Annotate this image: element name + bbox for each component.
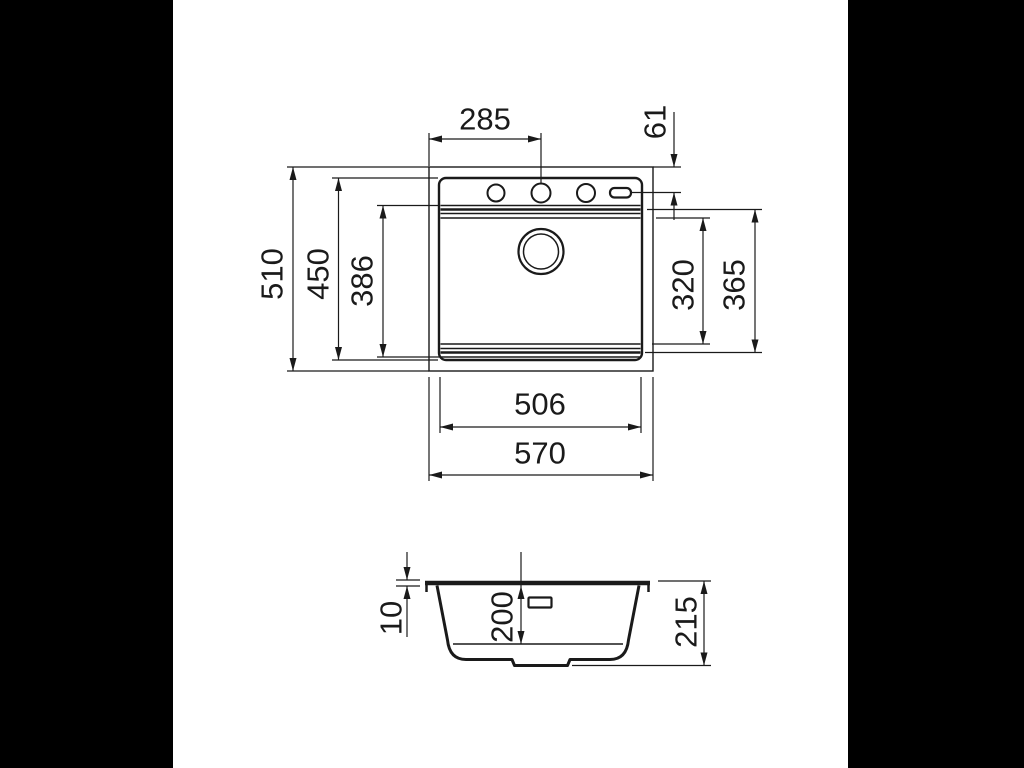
arrowhead: [671, 154, 678, 167]
letterbox-left: [0, 0, 173, 768]
arrowhead: [380, 344, 387, 357]
dim-label: 570: [514, 436, 566, 471]
arrowhead: [404, 586, 411, 599]
arrowhead: [429, 472, 442, 479]
dimension-10: 10: [374, 552, 421, 637]
dim-label: 386: [345, 255, 380, 307]
arrowhead: [335, 178, 342, 191]
arrowhead: [701, 653, 708, 666]
dim-label: 365: [717, 259, 752, 311]
arrowhead: [335, 347, 342, 360]
bowl-top-edge-lines: [441, 206, 641, 219]
dimension-506: 506: [440, 377, 641, 433]
arrowhead: [671, 193, 678, 206]
dim-label: 320: [666, 259, 701, 311]
dim-label: 10: [374, 601, 409, 635]
arrowhead: [429, 136, 442, 143]
arrowhead: [701, 581, 708, 594]
letterbox-right: [848, 0, 1024, 768]
dimension-510: 510: [255, 167, 430, 371]
arrowhead: [628, 424, 641, 431]
dimension-215: 215: [572, 581, 711, 666]
arrowhead: [700, 218, 707, 231]
arrowhead: [752, 340, 759, 353]
dimension-61: 61: [632, 105, 681, 220]
sink-section-view: [425, 581, 650, 666]
dim-label: 450: [301, 248, 336, 300]
sink-top-view: [429, 167, 653, 371]
dimension-285: 285: [429, 102, 541, 185]
dim-label: 285: [459, 102, 511, 137]
arrowhead: [528, 136, 541, 143]
arrowhead: [380, 206, 387, 219]
bowl-bottom-edge-lines: [441, 344, 641, 357]
dim-label: 506: [514, 387, 566, 422]
arrowhead: [290, 167, 297, 180]
drain-circle-outer: [519, 229, 564, 274]
arrowhead: [700, 331, 707, 344]
arrowhead: [440, 424, 453, 431]
dimension-200: 200: [485, 552, 525, 644]
drain-circle-inner: [524, 234, 559, 269]
arrowhead: [640, 472, 653, 479]
arrowhead: [752, 210, 759, 223]
overflow-hole: [529, 598, 552, 608]
dimension-320: 320: [652, 218, 710, 344]
faucet-hole-center: [532, 184, 551, 203]
arrowhead: [290, 358, 297, 371]
dim-label: 510: [255, 248, 290, 300]
faucet-hole-right: [577, 184, 595, 202]
faucet-hole-left: [488, 185, 505, 202]
dim-label: 61: [638, 105, 673, 139]
faucet-slot-hole: [610, 188, 631, 198]
dimension-386: 386: [345, 206, 440, 358]
dim-label: 200: [485, 591, 520, 643]
arrowhead: [404, 567, 411, 580]
screenshot-canvas: 285 61 510 450: [0, 0, 1024, 768]
dim-label: 215: [669, 596, 704, 648]
